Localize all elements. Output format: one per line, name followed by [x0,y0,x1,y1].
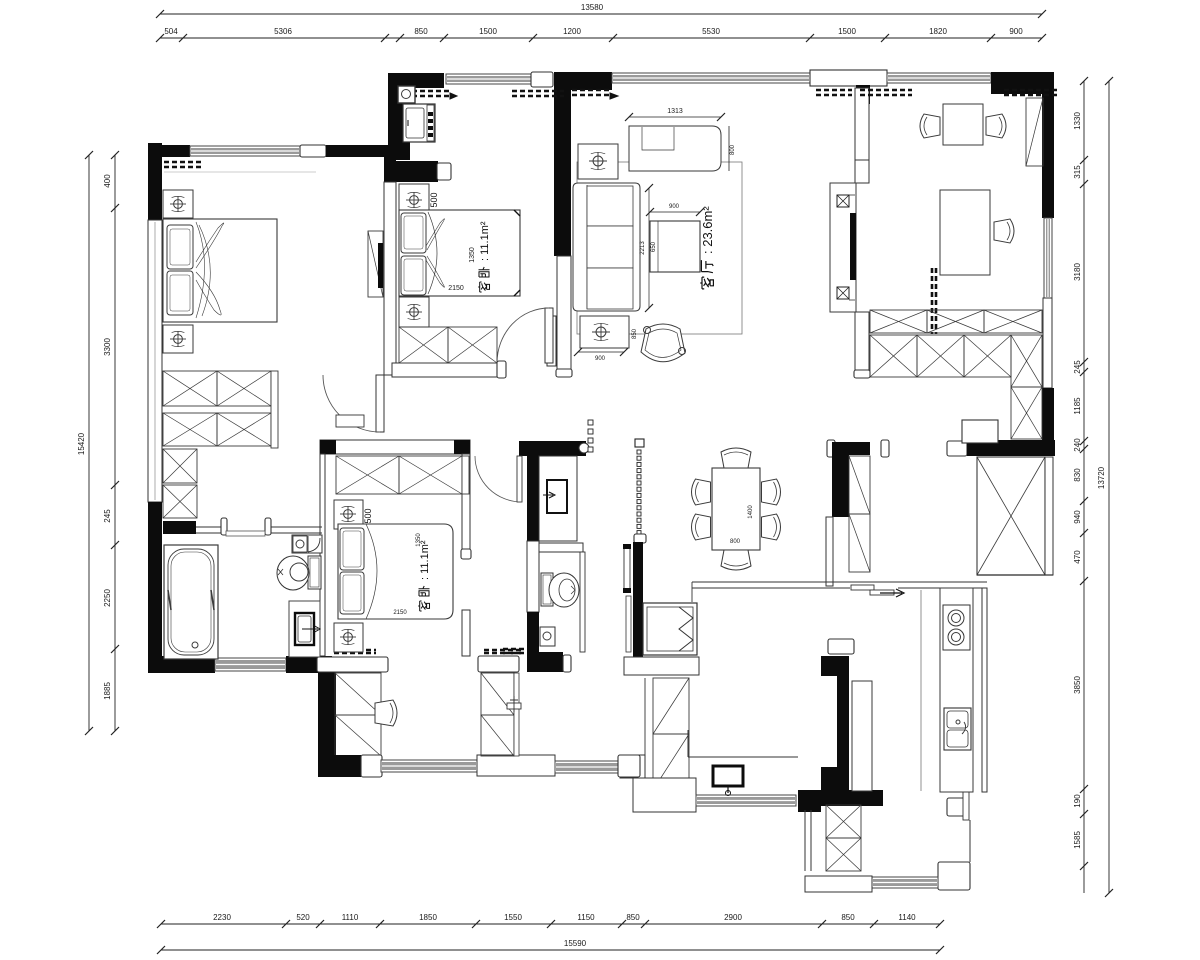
svg-text:1500: 1500 [838,27,856,36]
svg-text:15590: 15590 [564,939,587,948]
svg-text:650: 650 [651,241,657,252]
svg-text:2900: 2900 [724,913,742,922]
svg-text:1140: 1140 [898,913,916,922]
svg-text:13720: 13720 [1097,466,1106,489]
svg-text:15420: 15420 [77,432,86,455]
svg-text:1330: 1330 [1073,112,1082,130]
svg-text:1185: 1185 [1073,397,1082,415]
svg-text:800: 800 [730,539,741,545]
svg-text:1400: 1400 [748,505,754,519]
svg-text:800: 800 [730,144,736,155]
svg-text:: 11.1m²: : 11.1m² [419,540,431,580]
svg-text:5306: 5306 [274,27,292,36]
svg-text:1500: 1500 [479,27,497,36]
svg-text:245: 245 [1073,360,1082,374]
svg-text:1585: 1585 [1073,831,1082,849]
svg-text:850: 850 [841,913,855,922]
svg-text:500: 500 [429,192,439,207]
svg-text:1150: 1150 [577,913,595,922]
svg-text:2230: 2230 [213,913,231,922]
svg-text:900: 900 [669,204,680,210]
svg-text:245: 245 [103,509,112,523]
svg-text:5530: 5530 [702,27,720,36]
svg-text:1200: 1200 [563,27,581,36]
svg-text:520: 520 [296,913,310,922]
svg-text:2150: 2150 [393,610,407,616]
svg-text:3850: 3850 [1073,676,1082,694]
svg-text:850: 850 [414,27,428,36]
svg-text:3180: 3180 [1073,263,1082,281]
svg-text:1313: 1313 [667,108,683,115]
svg-text:240: 240 [1073,438,1082,452]
svg-text:1820: 1820 [929,27,947,36]
svg-text:400: 400 [103,174,112,188]
svg-text:504: 504 [164,27,178,36]
svg-text:: 11.1m²: : 11.1m² [479,221,491,261]
svg-text:1850: 1850 [419,913,437,922]
svg-text:900: 900 [1009,27,1023,36]
svg-text:1350: 1350 [469,247,476,263]
svg-text:830: 830 [1073,468,1082,482]
svg-text:2250: 2250 [103,589,112,607]
svg-text:13580: 13580 [581,3,604,12]
svg-text:940: 940 [1073,510,1082,524]
svg-text:: 23.6m²: : 23.6m² [700,206,715,254]
svg-text:500: 500 [363,508,373,523]
svg-text:2150: 2150 [448,285,464,292]
svg-text:2213: 2213 [640,241,646,255]
svg-text:1110: 1110 [342,913,359,922]
svg-text:1885: 1885 [103,682,112,700]
svg-text:850: 850 [626,913,640,922]
svg-text:850: 850 [632,328,638,339]
svg-text:190: 190 [1073,794,1082,808]
svg-text:900: 900 [595,356,606,362]
svg-text:470: 470 [1073,550,1082,564]
svg-text:315: 315 [1073,165,1082,179]
svg-text:1550: 1550 [504,913,522,922]
svg-text:3300: 3300 [103,338,112,356]
